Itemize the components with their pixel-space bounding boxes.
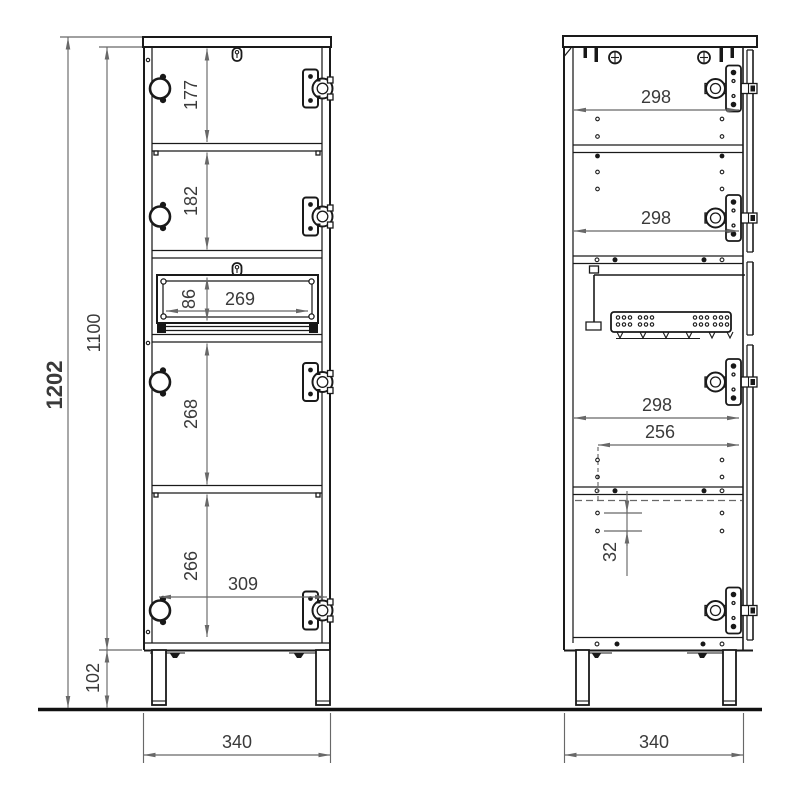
leg-mount-plate bbox=[170, 654, 180, 659]
grommet-fitting bbox=[150, 202, 170, 231]
leg bbox=[723, 650, 736, 705]
hinge bbox=[303, 198, 333, 236]
front-view-carcass bbox=[143, 37, 331, 651]
hinge bbox=[303, 70, 333, 108]
front-view-dimensions: 177 182 86 269 268 266 309 1202 1100 102 bbox=[42, 37, 331, 763]
dim-label-body-height: 1100 bbox=[84, 314, 104, 353]
leg bbox=[152, 650, 166, 705]
leg-mount-plate bbox=[592, 654, 601, 659]
dim-label-section-2: 182 bbox=[181, 186, 201, 216]
top-dowels bbox=[584, 47, 735, 64]
grommet-fitting bbox=[150, 367, 170, 396]
door-edge bbox=[747, 50, 753, 640]
side-view-carcass bbox=[563, 36, 757, 651]
dim-label-depth-1: 298 bbox=[641, 87, 671, 107]
keyhole-hanger bbox=[233, 48, 242, 61]
cabinet-technical-drawing: 177 182 86 269 268 266 309 1202 1100 102 bbox=[0, 0, 800, 800]
leg-mount-plate bbox=[698, 654, 707, 659]
drawer-slide bbox=[309, 324, 318, 333]
dim-label-door-width: 309 bbox=[228, 574, 258, 594]
dim-label-drawer-height: 86 bbox=[179, 289, 199, 309]
shelf-pin bbox=[316, 151, 320, 155]
technical-drawing-page: 177 182 86 269 268 266 309 1202 1100 102 bbox=[0, 0, 800, 800]
top-panel bbox=[143, 37, 331, 47]
dim-label-width: 340 bbox=[639, 732, 669, 752]
shelf-pin bbox=[154, 493, 158, 497]
dim-label-section-5: 266 bbox=[181, 551, 201, 581]
leg bbox=[316, 650, 330, 705]
side-view-legs bbox=[576, 650, 736, 705]
hinge bbox=[705, 66, 757, 112]
cam-lock bbox=[609, 52, 621, 64]
dim-label-section-1: 177 bbox=[181, 80, 201, 110]
front-view-legs bbox=[150, 650, 330, 705]
leg-mount-plate bbox=[294, 654, 304, 659]
hinge bbox=[705, 359, 757, 405]
hinge bbox=[705, 588, 757, 634]
drawer-slide bbox=[157, 324, 166, 333]
hinge bbox=[705, 195, 757, 241]
front-view: 177 182 86 269 268 266 309 1202 1100 102 bbox=[42, 37, 333, 763]
drawer-side-view bbox=[586, 266, 745, 339]
dim-label-drawer-width: 269 bbox=[225, 289, 255, 309]
top-panel bbox=[563, 36, 757, 47]
shelf-pin bbox=[316, 493, 320, 497]
drawer-slide-rail bbox=[611, 312, 731, 332]
dim-label-width: 340 bbox=[222, 732, 252, 752]
dim-label-inner-depth: 256 bbox=[645, 422, 675, 442]
leg bbox=[576, 650, 589, 705]
dim-label-hole-pitch: 32 bbox=[600, 542, 620, 562]
cam-lock bbox=[698, 52, 710, 64]
shelf-pin bbox=[154, 151, 158, 155]
grommet-fitting bbox=[150, 74, 170, 103]
dim-label-section-4: 268 bbox=[181, 399, 201, 429]
side-view: 298 298 298 256 32 340 bbox=[563, 36, 757, 763]
grommet-fitting bbox=[150, 596, 170, 625]
dim-label-cabinet-height: 1202 bbox=[42, 361, 67, 410]
dim-label-depth-2: 298 bbox=[641, 208, 671, 228]
hinge bbox=[303, 363, 333, 401]
dim-label-leg-height: 102 bbox=[83, 663, 103, 693]
side-view-dimensions: 298 298 298 256 32 340 bbox=[565, 87, 744, 763]
dim-label-depth-3: 298 bbox=[642, 395, 672, 415]
